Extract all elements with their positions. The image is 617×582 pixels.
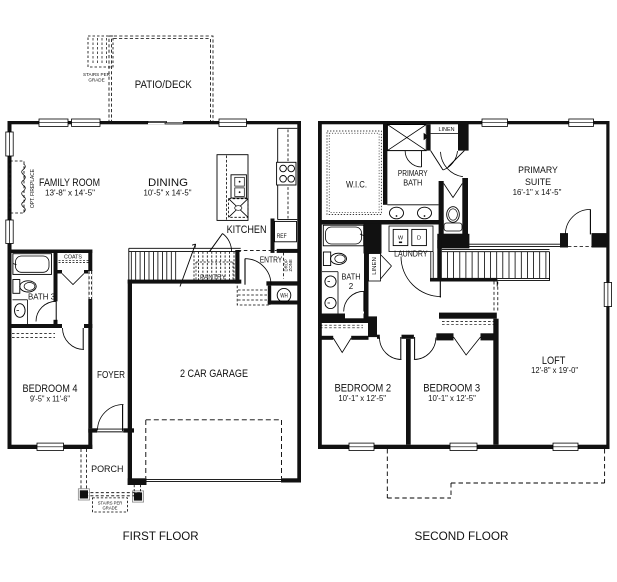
svg-text:16'-1" x 14'-5": 16'-1" x 14'-5" xyxy=(513,188,562,197)
svg-text:PORCH: PORCH xyxy=(91,464,123,474)
svg-text:LINEN: LINEN xyxy=(439,127,455,133)
svg-text:STAIRS PER: STAIRS PER xyxy=(83,72,111,77)
svg-text:SECOND FLOOR: SECOND FLOOR xyxy=(415,531,509,543)
svg-text:12'-8" x 19'-0": 12'-8" x 19'-0" xyxy=(531,366,578,375)
svg-text:W: W xyxy=(398,236,404,242)
svg-text:LINEN: LINEN xyxy=(372,257,378,275)
svg-text:COATS: COATS xyxy=(64,255,82,261)
svg-text:FOYER: FOYER xyxy=(97,369,125,381)
svg-text:PRIMARY: PRIMARY xyxy=(398,169,428,178)
svg-text:KITCHEN: KITCHEN xyxy=(227,224,267,236)
svg-text:GRADE: GRADE xyxy=(88,78,104,83)
svg-text:10'-1" x 12'-5": 10'-1" x 12'-5" xyxy=(428,394,476,403)
svg-text:BATH: BATH xyxy=(403,178,422,187)
svg-text:BEDROOM 4: BEDROOM 4 xyxy=(23,383,78,395)
svg-text:WH: WH xyxy=(280,293,288,300)
svg-text:PATIO/DECK: PATIO/DECK xyxy=(135,79,193,91)
svg-text:LAUNDRY: LAUNDRY xyxy=(394,249,428,259)
svg-text:DINING: DINING xyxy=(148,177,188,189)
svg-text:BEDROOM 3: BEDROOM 3 xyxy=(423,383,480,395)
svg-text:2: 2 xyxy=(349,282,354,291)
svg-text:FIRST FLOOR: FIRST FLOOR xyxy=(123,531,199,543)
svg-text:BATH 3: BATH 3 xyxy=(28,291,55,301)
svg-text:10'-5" x 14'-5": 10'-5" x 14'-5" xyxy=(144,188,192,197)
svg-text:ZONE: ZONE xyxy=(288,259,293,271)
svg-text:PRIMARY: PRIMARY xyxy=(518,165,558,176)
svg-text:9'-5" x 11'-6": 9'-5" x 11'-6" xyxy=(30,394,70,403)
svg-text:W.I.C.: W.I.C. xyxy=(346,180,367,190)
svg-text:2 CAR GARAGE: 2 CAR GARAGE xyxy=(180,368,248,380)
svg-text:OPT. FIREPLACE: OPT. FIREPLACE xyxy=(30,168,36,208)
svg-text:13'-8" x 14'-5": 13'-8" x 14'-5" xyxy=(45,188,95,197)
svg-text:D: D xyxy=(417,236,421,242)
svg-text:REF: REF xyxy=(277,233,287,240)
svg-text:SUITE: SUITE xyxy=(525,177,551,188)
svg-text:FAMILY ROOM: FAMILY ROOM xyxy=(39,177,100,189)
svg-text:BATH: BATH xyxy=(342,273,361,282)
svg-text:10'-1" x 12'-5": 10'-1" x 12'-5" xyxy=(338,394,386,403)
svg-text:GRADE: GRADE xyxy=(103,506,118,511)
svg-text:ENTRY: ENTRY xyxy=(260,256,283,265)
svg-text:BEDROOM 2: BEDROOM 2 xyxy=(334,383,391,395)
